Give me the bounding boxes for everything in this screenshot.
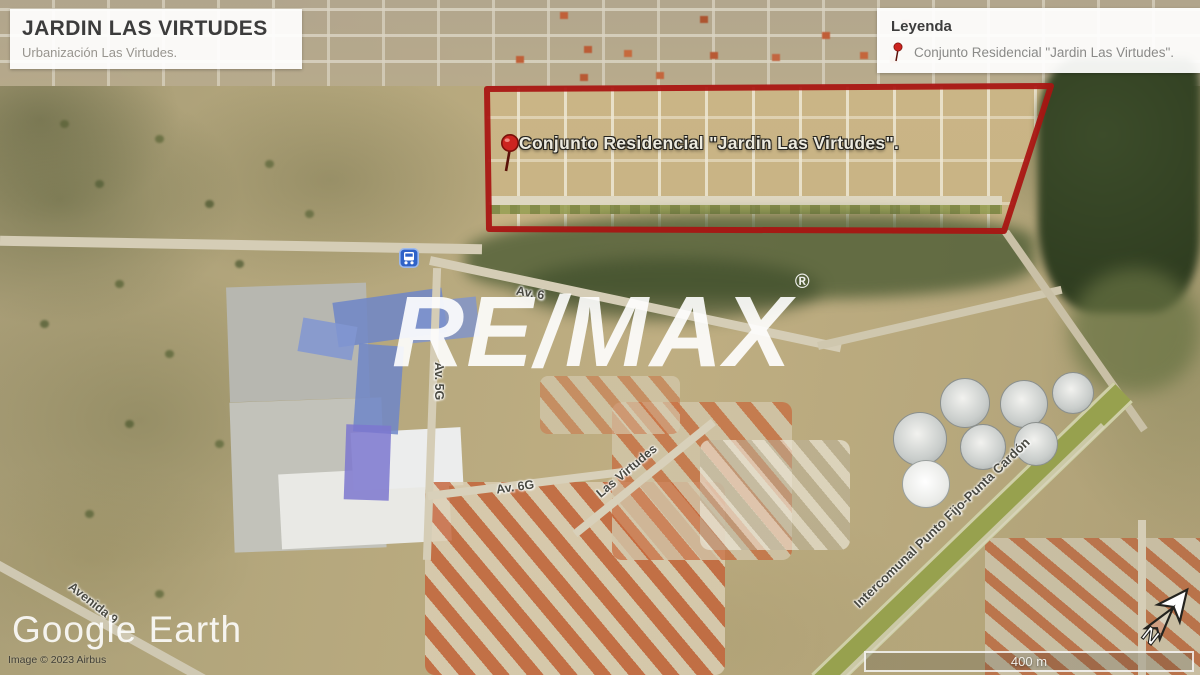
terrain-shrub-specks bbox=[60, 120, 69, 128]
terrain-development-road bbox=[490, 196, 1002, 205]
registered-trademark-icon: ® bbox=[795, 271, 812, 293]
title-box: JARDIN LAS VIRTUDES Urbanización Las Vir… bbox=[10, 9, 302, 69]
google-earth-logo: Google Earth bbox=[12, 609, 242, 651]
placemark-label: Conjunto Residencial "Jardin Las Virtude… bbox=[519, 133, 899, 154]
oil-tank bbox=[893, 412, 947, 466]
bus-stop-icon[interactable] bbox=[399, 248, 419, 268]
legend-pushpin-icon bbox=[891, 42, 905, 63]
compass[interactable]: N bbox=[1128, 576, 1200, 660]
oil-tank bbox=[1000, 380, 1048, 428]
satellite-map[interactable]: Av. 6 Av. 5G Av. 6G Las Virtudes Avenida… bbox=[0, 0, 1200, 675]
oil-tank-white bbox=[902, 460, 950, 508]
remax-watermark: RE/MAX® bbox=[392, 272, 812, 382]
oil-tank bbox=[940, 378, 990, 428]
page-title: JARDIN LAS VIRTUDES bbox=[22, 17, 290, 41]
legend-item: Conjunto Residencial "Jardin Las Virtude… bbox=[891, 42, 1200, 63]
remax-brand-text: RE/MAX bbox=[392, 276, 793, 388]
page-subtitle: Urbanización Las Virtudes. bbox=[22, 45, 290, 60]
legend-panel: Leyenda Conjunto Residencial "Jardin Las… bbox=[877, 8, 1200, 73]
imagery-copyright: Image © 2023 Airbus bbox=[8, 654, 106, 666]
terrain-tree-row bbox=[490, 205, 1002, 214]
terrain-residential-light bbox=[700, 440, 850, 550]
terrain-mall-roof-blue4 bbox=[344, 424, 392, 501]
scale-bar-label: 400 m bbox=[1011, 654, 1047, 669]
terrain-roof-specks bbox=[560, 12, 568, 19]
legend-title: Leyenda bbox=[891, 18, 1200, 35]
oil-tank bbox=[1052, 372, 1094, 414]
terrain-forest-edge bbox=[1070, 268, 1200, 393]
legend-item-label: Conjunto Residencial "Jardin Las Virtude… bbox=[914, 45, 1174, 60]
